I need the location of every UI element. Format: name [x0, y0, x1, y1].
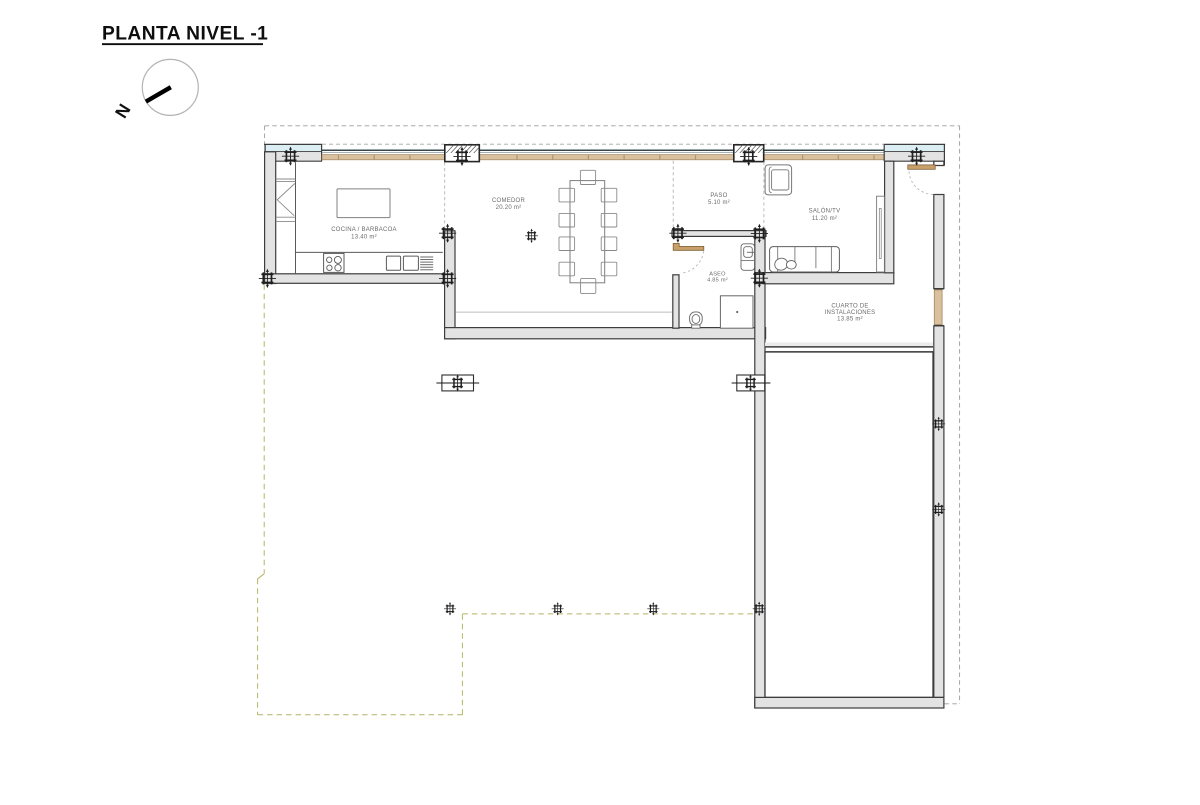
svg-text:13.85 m²: 13.85 m²: [837, 316, 863, 322]
svg-text:CUARTO DE: CUARTO DE: [831, 303, 868, 309]
svg-text:PASO: PASO: [710, 193, 727, 199]
svg-text:COMEDOR: COMEDOR: [492, 198, 526, 204]
svg-text:11.20 m²: 11.20 m²: [812, 216, 837, 222]
svg-text:INSTALACIONES: INSTALACIONES: [825, 310, 876, 316]
svg-text:13.40 m²: 13.40 m²: [351, 235, 377, 241]
svg-text:5.10 m²: 5.10 m²: [708, 200, 730, 206]
svg-text:20.20 m²: 20.20 m²: [496, 205, 522, 211]
svg-text:4.85 m²: 4.85 m²: [707, 277, 728, 283]
svg-text:COCINA / BARBACOA: COCINA / BARBACOA: [331, 227, 397, 233]
svg-text:SALÓN/TV: SALÓN/TV: [809, 208, 841, 215]
svg-text:PLANTA NIVEL -1: PLANTA NIVEL -1: [102, 24, 268, 45]
